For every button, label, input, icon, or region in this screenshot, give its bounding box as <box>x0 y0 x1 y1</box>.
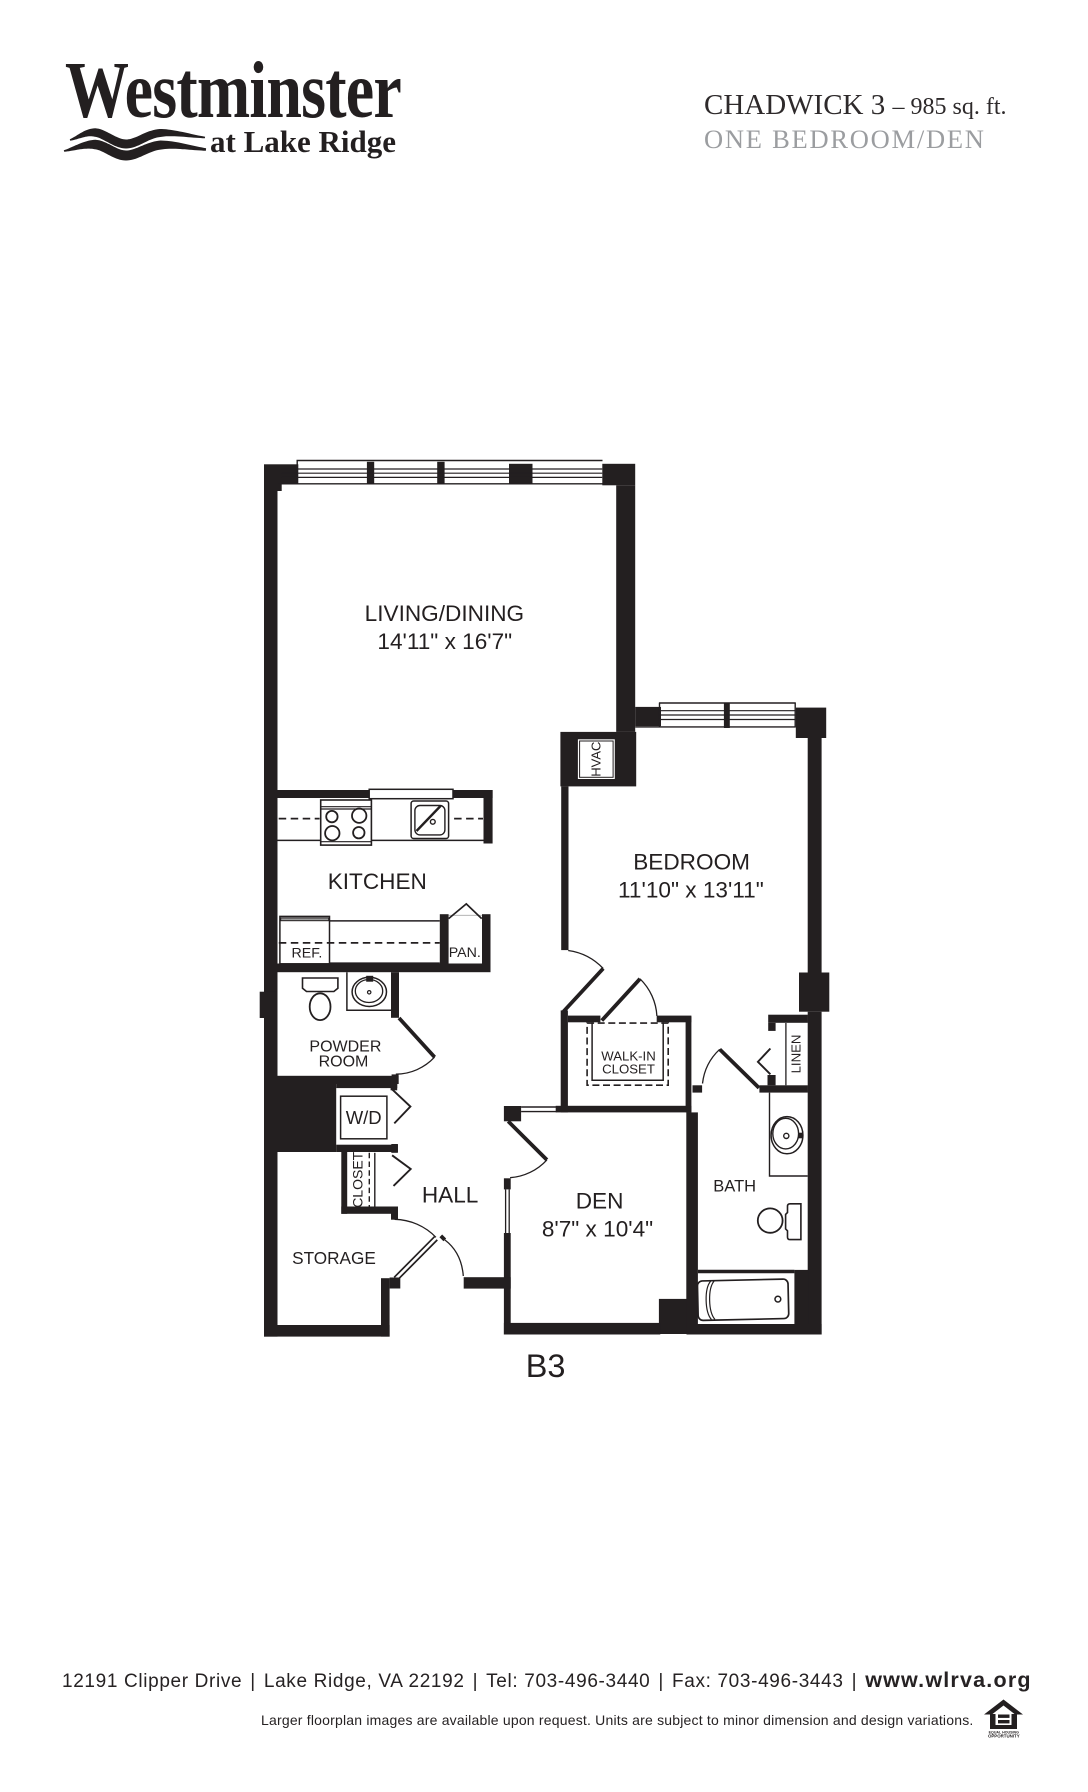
svg-text:BATH: BATH <box>713 1177 756 1195</box>
svg-text:OPPORTUNITY: OPPORTUNITY <box>988 1734 1020 1739</box>
svg-text:11'10" x 13'11": 11'10" x 13'11" <box>618 878 764 903</box>
svg-text:B3: B3 <box>526 1348 566 1384</box>
svg-text:CLOSET: CLOSET <box>602 1062 655 1077</box>
svg-text:8'7" x 10'4": 8'7" x 10'4" <box>542 1216 653 1241</box>
svg-text:KITCHEN: KITCHEN <box>328 869 427 894</box>
svg-text:W/D: W/D <box>346 1107 382 1128</box>
svg-text:LINEN: LINEN <box>789 1035 804 1074</box>
svg-text:ROOM: ROOM <box>319 1053 369 1070</box>
svg-text:BEDROOM: BEDROOM <box>633 850 750 875</box>
svg-text:HVAC: HVAC <box>589 742 604 777</box>
svg-text:STORAGE: STORAGE <box>292 1248 376 1268</box>
svg-text:REF.: REF. <box>292 946 323 962</box>
svg-text:LIVING/DINING: LIVING/DINING <box>365 601 524 626</box>
svg-text:PAN.: PAN. <box>449 945 481 961</box>
svg-text:14'11" x 16'7": 14'11" x 16'7" <box>377 629 512 654</box>
svg-text:HALL: HALL <box>422 1183 479 1208</box>
svg-text:DEN: DEN <box>576 1188 624 1213</box>
svg-text:CLOSET: CLOSET <box>350 1151 366 1207</box>
